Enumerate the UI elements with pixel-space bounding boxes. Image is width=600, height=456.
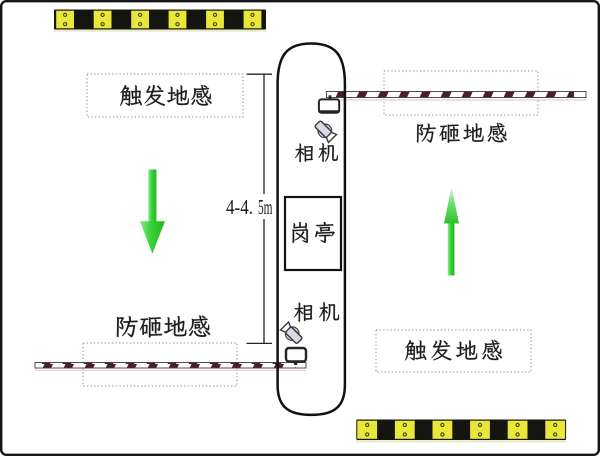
svg-text:5m: 5m xyxy=(258,195,273,219)
svg-text:4-4.: 4-4. xyxy=(226,195,253,219)
